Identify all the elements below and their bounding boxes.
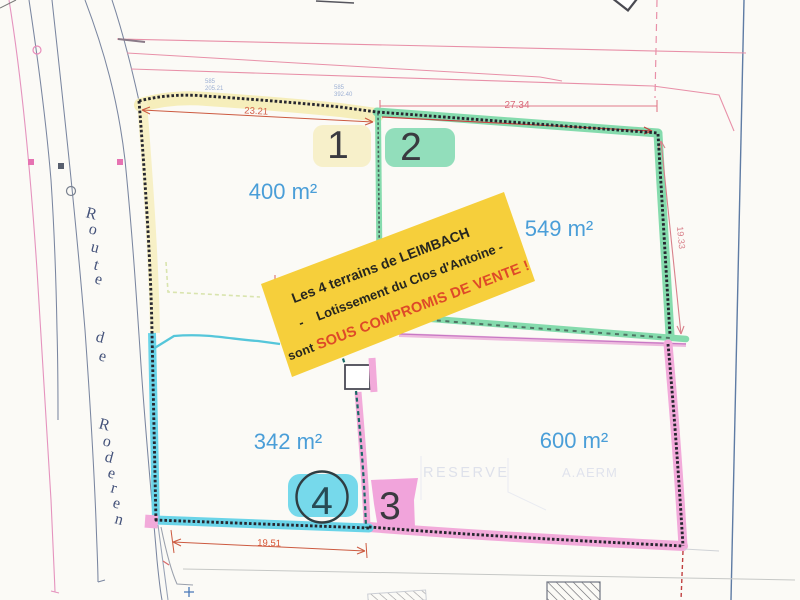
svg-text:400 m²: 400 m²: [249, 179, 317, 204]
svg-text:1: 1: [327, 124, 349, 167]
svg-text:23.21: 23.21: [244, 105, 268, 117]
svg-text:RESERVE: RESERVE: [423, 465, 510, 481]
svg-text:A.AERM: A.AERM: [562, 465, 618, 480]
svg-text:549 m²: 549 m²: [525, 216, 593, 241]
svg-text:4: 4: [311, 480, 333, 523]
svg-text:342 m²: 342 m²: [254, 429, 322, 454]
svg-text:3: 3: [379, 485, 401, 528]
svg-text:600 m²: 600 m²: [540, 428, 608, 453]
svg-text:19.51: 19.51: [257, 538, 281, 550]
svg-text:27.34: 27.34: [504, 100, 529, 111]
svg-text:2: 2: [400, 126, 422, 169]
